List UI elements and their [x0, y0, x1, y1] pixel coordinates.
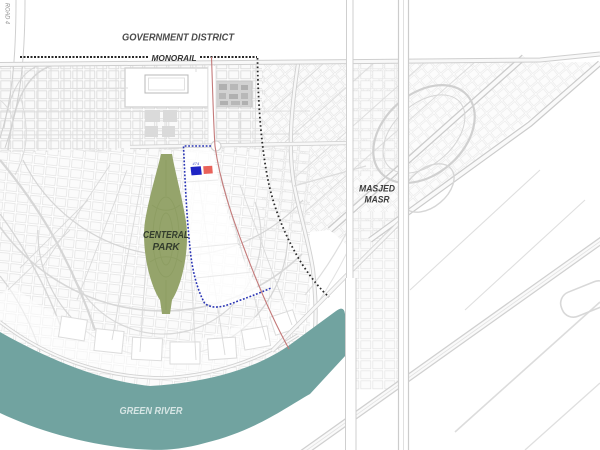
svg-text:PARK: PARK [153, 241, 181, 253]
svg-text:MASJED: MASJED [359, 184, 395, 195]
svg-text:GREEN RIVER: GREEN RIVER [120, 405, 183, 417]
svg-text:GOVERNMENT DISTRICT: GOVERNMENT DISTRICT [122, 32, 235, 44]
svg-text:MONORAIL: MONORAIL [152, 53, 197, 63]
svg-text:474: 474 [193, 162, 200, 166]
svg-text:MASR: MASR [365, 195, 390, 206]
svg-text:CENTERAL: CENTERAL [143, 229, 189, 241]
svg-text:ROAD 4: ROAD 4 [4, 3, 11, 24]
